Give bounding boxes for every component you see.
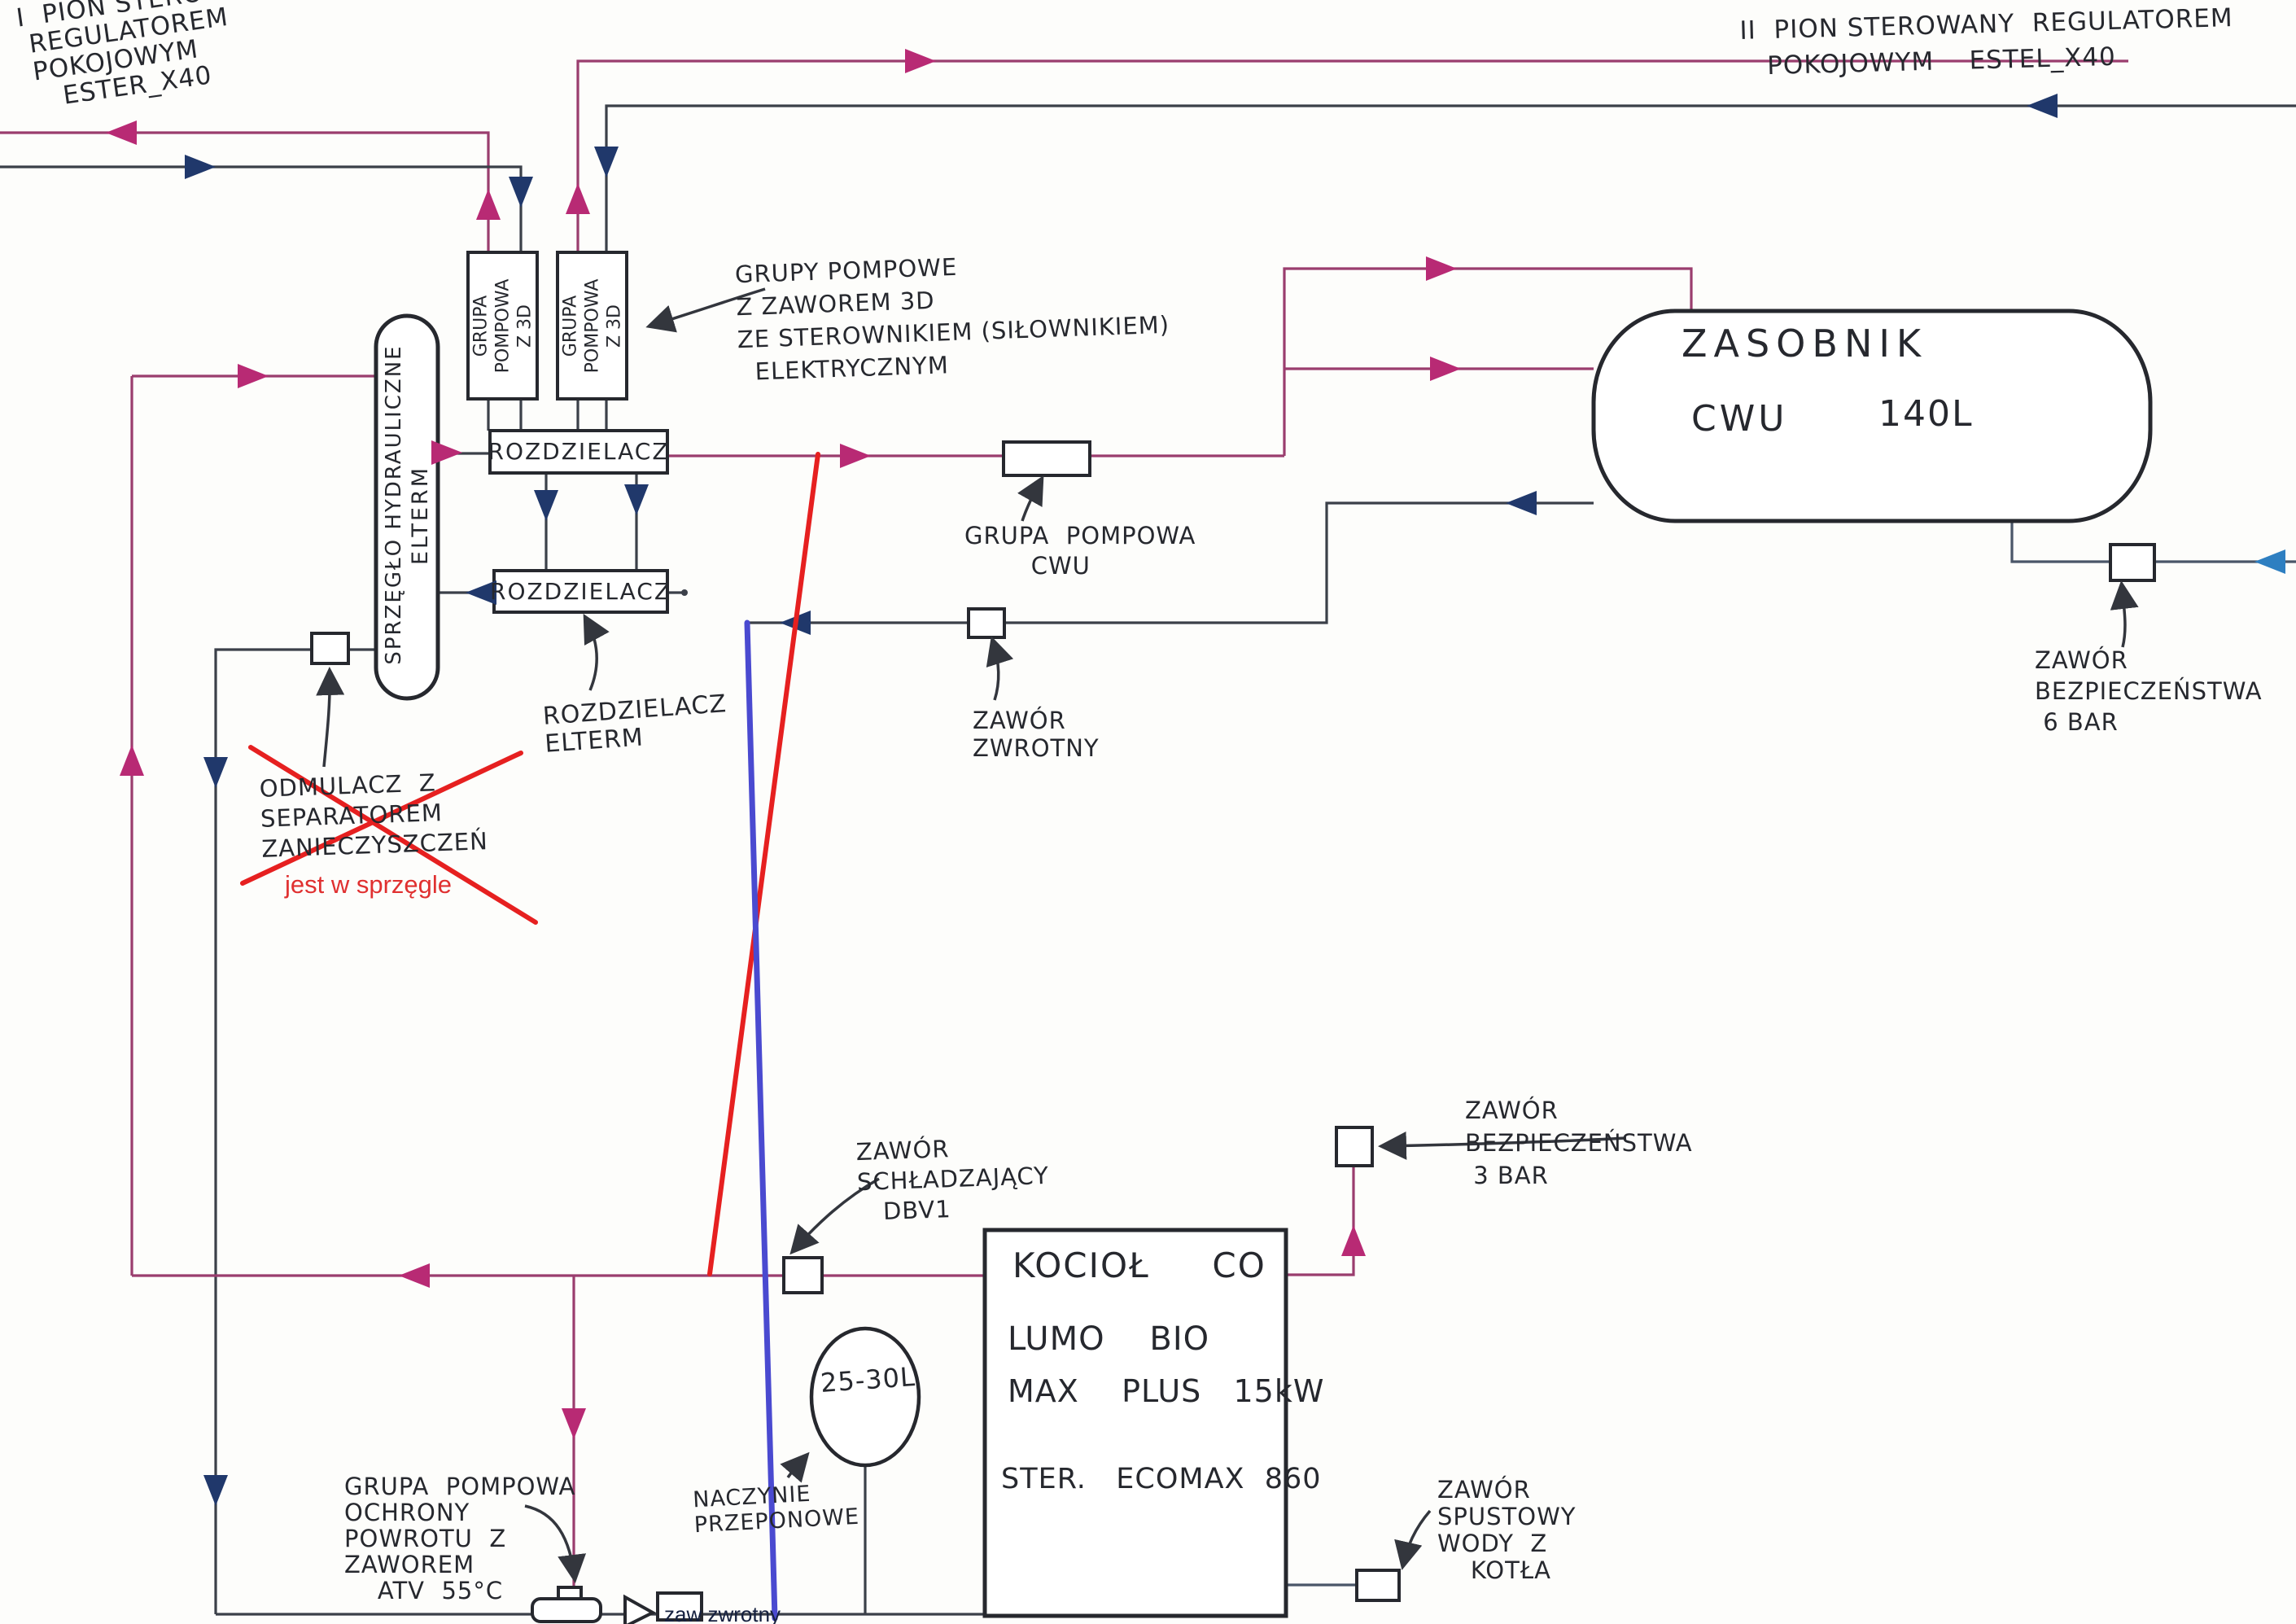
boiler-title: KOCIOŁ CO (1012, 1252, 1266, 1280)
hydraulic-coupler-label: SPRZĘGŁO HYDRAULICZNE (379, 317, 409, 692)
safety-valve-3bar-note: ZAWÓR BEZPIECZEŃSTWA 3 BAR (1465, 1094, 1693, 1192)
rozdzielacz-connecting-pipes (546, 473, 636, 571)
pion2-return-pipe (606, 106, 2296, 252)
pion2-supply-pipe (578, 61, 2128, 252)
odmulacz-valve-box (312, 633, 348, 663)
flow-arrow-up-icon (120, 745, 144, 776)
blue-correction-line (747, 623, 775, 1618)
cwu-pump-group-box (1004, 442, 1090, 475)
flow-arrow-down-icon (624, 484, 649, 515)
flow-arrow-up-icon (566, 183, 590, 214)
pump-groups-note: GRUPY POMPOWE Z ZAWOREM 3D ZE STEROWNIKI… (734, 243, 1171, 388)
flow-arrow-down-icon (594, 147, 619, 177)
flow-arrow-right-icon (840, 444, 871, 468)
check-valve-typed-note: zaw zwrotny (664, 1600, 781, 1624)
flow-arrow-left-icon (399, 1263, 430, 1288)
safety-valve-6bar-box (2110, 545, 2154, 580)
check-valve-triangle-icon (625, 1597, 653, 1624)
flow-arrow-right-icon (1430, 357, 1461, 381)
flow-arrow-right-icon (431, 440, 462, 465)
flow-arrow-up-icon (1341, 1225, 1366, 1256)
tank-title: ZASOBNIK (1682, 330, 1927, 357)
boiler-controller-label: STER. ECOMAX 860 (1001, 1465, 1322, 1493)
cwu-check-valve-note: ZAWÓR ZWROTNY (973, 707, 1100, 762)
stub-end-dot (681, 589, 688, 596)
pump-group-1-label: GRUPA POMPOWA Z 3D (469, 253, 538, 400)
flow-arrow-right-icon (238, 364, 269, 388)
dbv1-valve-box (784, 1258, 822, 1293)
scanned-heating-diagram: I PION STEROWANY REGULATOREM POKOJOWYM E… (0, 0, 2296, 1624)
jest-w-sprzegle-typed-note: jest w sprzęgle (285, 871, 452, 899)
note-arrow-to-cwu-check-valve (993, 641, 999, 700)
pump-group-2-label: GRUPA POMPOWA Z 3D (558, 253, 628, 400)
pion2-label: II PION STEROWANY REGULATOREM POKOJOWYM … (1739, 0, 2234, 85)
safety-valve-6bar-note: ZAWÓR BEZPIECZEŃSTWA 6 BAR (2035, 645, 2263, 738)
flow-arrow-down-icon (203, 1475, 228, 1506)
drain-valve-box (1357, 1570, 1399, 1600)
cwu-check-valve-box (969, 609, 1004, 637)
flow-arrow-left-icon (2254, 549, 2285, 574)
note-arrow-to-drain-valve (1403, 1511, 1430, 1565)
note-arrow-to-6bar-valve (2122, 586, 2125, 647)
expansion-vessel-note: NACZYNIE PRZEPONOWE (693, 1479, 860, 1539)
boiler-safety-riser (1286, 1166, 1354, 1275)
cwu-pump-group-note: GRUPA POMPOWA CWU (964, 521, 1196, 581)
tank-volume-label: 140L (1878, 401, 1974, 428)
atv-pump-group-note: GRUPA POMPOWA OCHRONY POWROTU Z ZAWOREM … (344, 1473, 575, 1604)
pump-group-outlet-stubs (488, 399, 606, 431)
note-arrow-to-lower-rozdzielacz (586, 619, 597, 690)
flow-arrow-down-icon (203, 757, 228, 788)
note-arrow-to-odmulacz (324, 672, 330, 767)
flow-arrow-left-icon (1506, 491, 1537, 515)
pion1-supply-pipe (0, 133, 488, 252)
flow-arrow-right-icon (1426, 256, 1457, 281)
odmulacz-note: ODMULACZ Z SEPARATOREM ZANIECZYSZCZEŃ (259, 766, 488, 865)
note-arrow-to-expansion-vessel (788, 1456, 806, 1477)
flow-arrow-down-icon (509, 177, 533, 208)
flow-arrow-left-icon (106, 120, 137, 145)
boiler-model-line2: MAX PLUS 15kW (1008, 1377, 1324, 1405)
lower-rozdzielacz-label: ROZDZIELACZ (494, 571, 667, 612)
pion1-return-pipe (0, 167, 521, 252)
dbv1-valve-note: ZAWÓR SCHŁADZAJĄCY DBV1 (855, 1131, 1051, 1228)
flow-arrow-right-icon (905, 49, 936, 73)
expansion-vessel-volume: 25-30L (820, 1363, 916, 1397)
flow-arrow-right-icon (185, 155, 216, 179)
boiler-model-line1: LUMO BIO (1008, 1325, 1209, 1353)
note-arrow-to-cwu-pump (1022, 480, 1041, 521)
tank-cwu-label: CWU (1691, 405, 1787, 433)
flow-arrow-down-icon (534, 490, 558, 521)
flow-arrow-left-icon (2027, 94, 2058, 118)
drain-valve-note: ZAWÓR SPUSTOWY WODY Z KOTŁA (1437, 1477, 1576, 1584)
elterm-label: ELTERM (407, 434, 435, 597)
flow-arrow-up-icon (476, 189, 501, 220)
boiler-box (985, 1230, 1286, 1616)
safety-valve-3bar-box (1336, 1127, 1372, 1166)
flow-arrow-down-icon (562, 1408, 586, 1439)
upper-rozdzielacz-label: ROZDZIELACZ (490, 431, 667, 473)
